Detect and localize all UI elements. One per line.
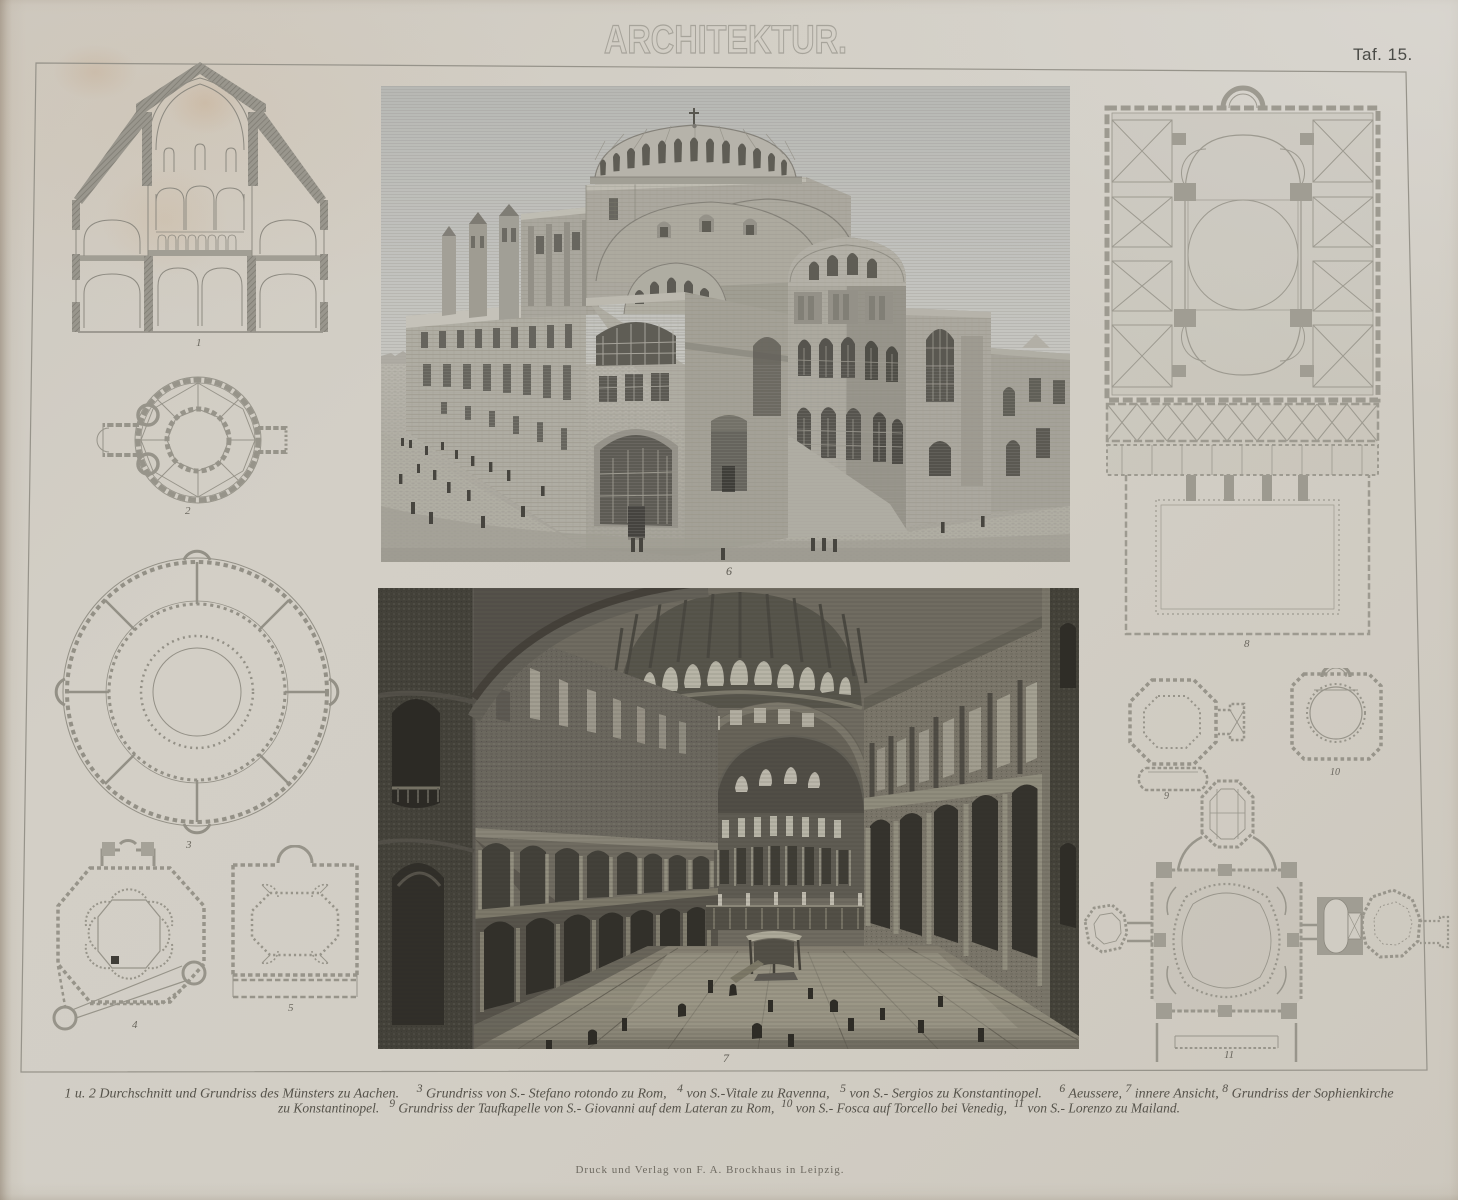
svg-text:2: 2 bbox=[185, 505, 191, 517]
svg-text:5: 5 bbox=[288, 1002, 294, 1013]
svg-text:4: 4 bbox=[132, 1019, 138, 1031]
svg-text:11: 11 bbox=[1224, 1049, 1234, 1061]
svg-text:ARCHITEKTUR.: ARCHITEKTUR. bbox=[604, 18, 847, 62]
svg-text:8: 8 bbox=[1244, 638, 1250, 650]
svg-text:1: 1 bbox=[196, 337, 202, 349]
